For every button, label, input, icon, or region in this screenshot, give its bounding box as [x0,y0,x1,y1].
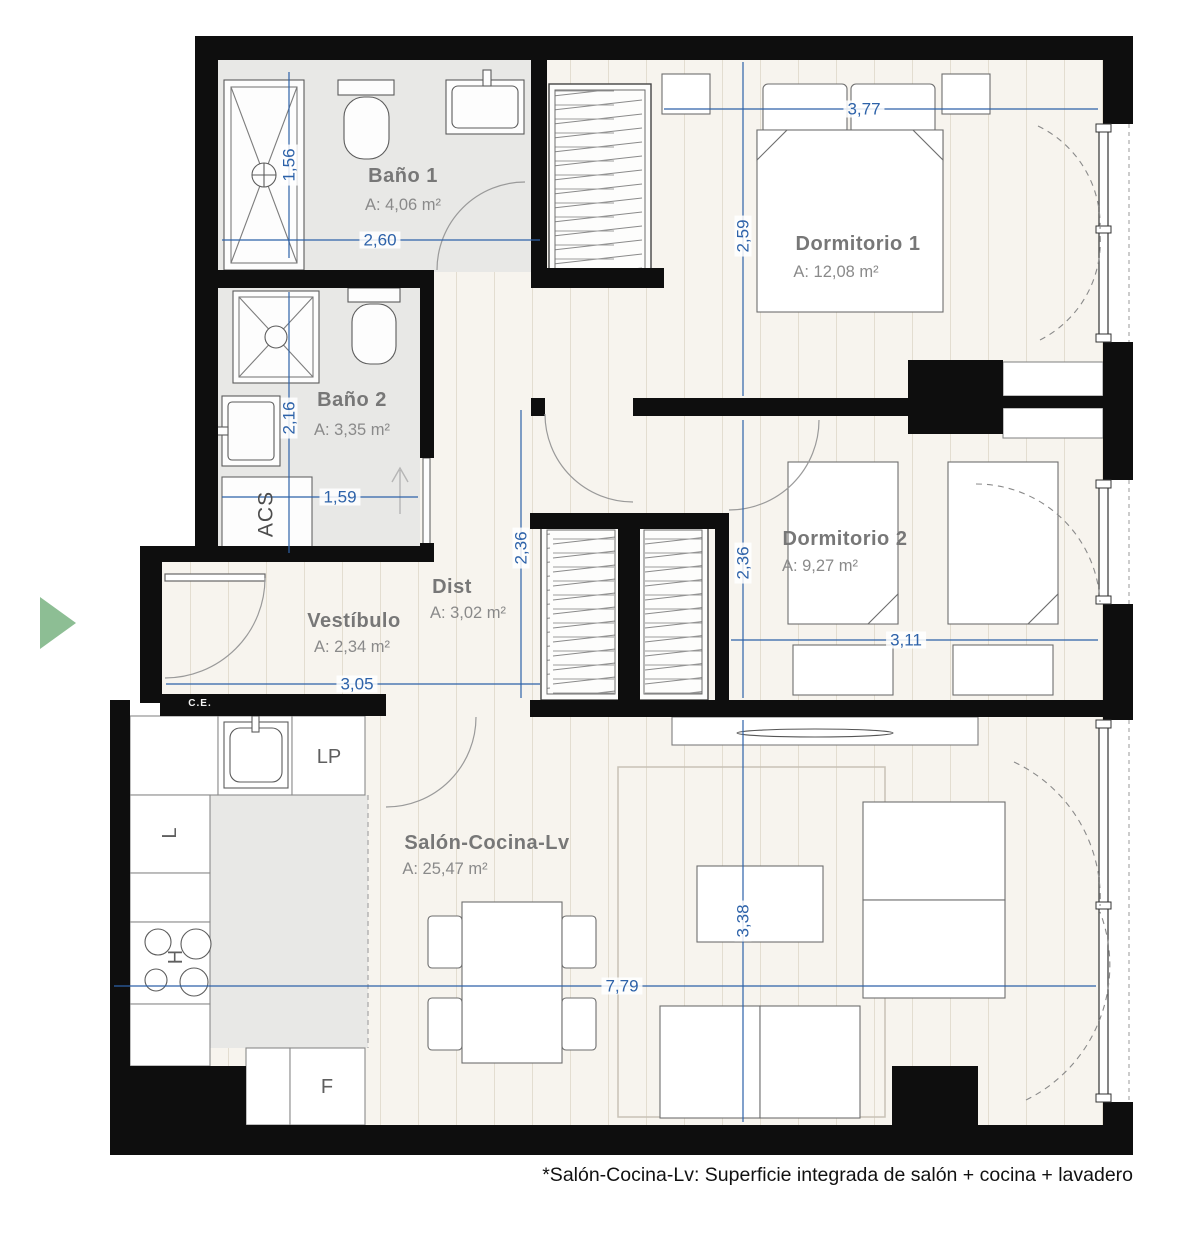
room-label-dist: Dist [432,577,472,597]
sofa-seat [660,1006,760,1118]
pillar [892,1066,978,1126]
dim-dormitorio1-height: 2,59 [735,215,752,256]
room-area-dist: A: 3,02 m² [430,605,506,622]
counter-cell [130,716,218,795]
dim-dormitorio1-width: 3,77 [843,101,884,118]
entrance-door-leaf [165,574,265,581]
toilet-bowl [344,97,389,159]
nightstand [942,74,990,114]
dim-dormitorio2-height: 2,36 [735,542,752,583]
label-electrical-box: C.E. [188,699,211,709]
shower-drain-icon [265,326,287,348]
sink-tap [483,70,491,86]
room-label-dormitorio1: Dormitorio 1 [796,234,921,254]
room-area-vestibulo: A: 2,34 m² [314,639,390,656]
footnote: *Salón-Cocina-Lv: Superficie integrada d… [542,1164,1133,1187]
sofa-chaise [863,802,1005,900]
label-water-heater: ACS [256,491,277,537]
entrance-arrow-icon [40,597,76,649]
room-label-bano1: Baño 1 [368,166,438,186]
dim-salon-height: 3,38 [735,900,752,941]
floor-plan-drawing [0,0,1200,1252]
dining-table [462,902,562,1063]
room-area-bano2: A: 3,35 m² [314,422,390,439]
dim-dormitorio2-width: 3,11 [886,632,926,649]
burner-icon [180,968,208,996]
closet-strip [1003,408,1103,438]
bed-foot-box [953,645,1053,695]
room-area-dormitorio2: A: 9,27 m² [782,558,858,575]
label-fridge: F [321,1077,333,1097]
label-dishwasher: LP [317,747,341,767]
floor-plan-canvas: Baño 1 A: 4,06 m² Baño 2 A: 3,35 m² Dorm… [0,0,1200,1252]
room-label-bano2: Baño 2 [317,390,387,410]
label-hob: H [166,950,186,964]
sofa-seat [760,1006,860,1118]
room-area-bano1: A: 4,06 m² [365,197,441,214]
door-leaf [423,458,430,544]
shaft [908,360,1003,434]
tv-screen [737,729,893,737]
sink-tap [252,716,259,732]
chair [428,916,462,968]
dim-bano2-height: 2,16 [281,397,298,438]
nightstand [662,74,710,114]
dim-bano1-height: 1,56 [281,144,298,185]
counter-cell [246,1048,290,1125]
dim-bano1-width: 2,60 [359,232,400,249]
dim-vestibulo-width: 3,05 [336,676,377,693]
room-label-salon: Salón-Cocina-Lv [404,833,569,853]
single-bed [948,462,1058,624]
coffee-table [697,866,823,942]
room-area-dormitorio1: A: 12,08 m² [793,264,878,281]
counter-cell [130,873,210,922]
room-label-dormitorio2: Dormitorio 2 [783,529,908,549]
chair [562,998,596,1050]
counter-cell [130,1004,210,1066]
sofa-chaise [863,900,1005,998]
bed-foot-box [793,645,893,695]
room-area-salon: A: 25,47 m² [402,861,487,878]
toilet-tank [348,288,400,302]
label-washer: L [160,827,180,838]
chair [428,998,462,1050]
room-label-vestibulo: Vestíbulo [307,611,400,631]
double-bed [757,130,943,312]
kitchen-floor [210,795,368,1048]
sink-basin [228,402,274,460]
sink-basin [452,86,518,128]
dim-bano2-width: 1,59 [319,489,360,506]
closet-strip [1003,362,1103,396]
toilet-bowl [352,304,396,364]
burner-icon [145,969,167,991]
dim-dist-height: 2,36 [513,527,530,568]
toilet-tank [338,80,394,95]
window-glazing [1099,484,1108,600]
chair [562,916,596,968]
window-glazing [1099,724,1108,1098]
dim-salon-width: 7,79 [601,978,642,995]
